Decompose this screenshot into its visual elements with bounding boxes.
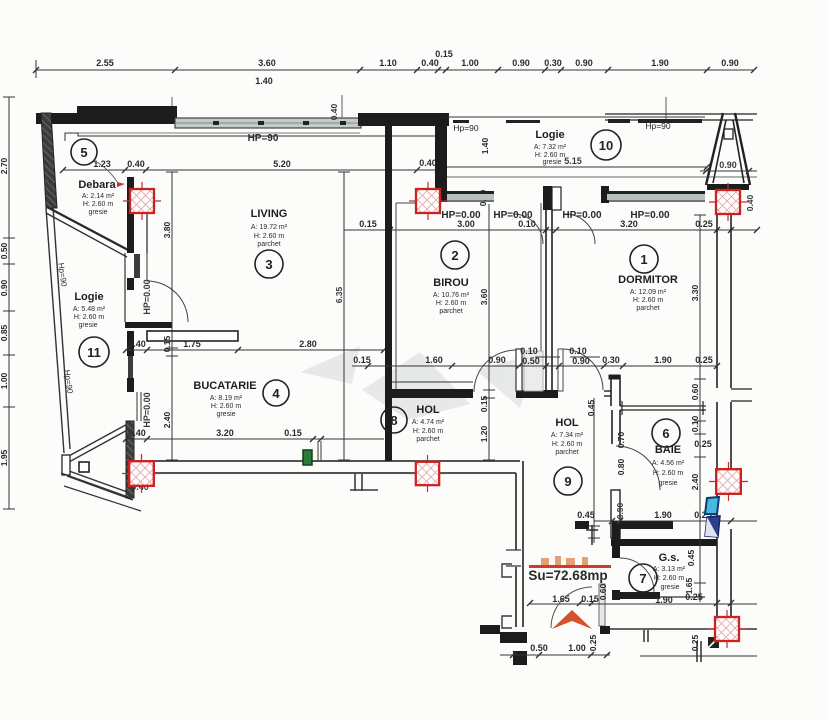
svg-text:0.90: 0.90 [0,279,9,296]
svg-text:parchet: parchet [416,436,439,443]
svg-text:1.00: 1.00 [568,643,586,653]
svg-text:gresie: gresie [660,584,679,591]
svg-text:HP=0.00: HP=0.00 [441,210,481,221]
svg-text:2.40: 2.40 [162,411,172,428]
svg-text:0.40: 0.40 [128,428,146,438]
svg-text:H: 2.60 m: H: 2.60 m [436,300,467,307]
svg-text:3.60: 3.60 [479,288,489,305]
svg-text:A: 4.56 m²: A: 4.56 m² [652,460,685,467]
svg-text:0.90: 0.90 [512,58,530,68]
svg-text:H: 2.60 m: H: 2.60 m [413,428,444,435]
svg-text:0.90: 0.90 [575,58,593,68]
svg-text:HP=0.00: HP=0.00 [493,210,533,221]
svg-text:H: 2.60 m: H: 2.60 m [83,201,114,208]
svg-text:1.60: 1.60 [425,355,443,365]
svg-text:H: 2.60 m: H: 2.60 m [654,575,685,582]
svg-text:0.70: 0.70 [616,431,626,448]
svg-text:1: 1 [640,252,647,267]
svg-text:0.40: 0.40 [127,159,145,169]
svg-text:Logie: Logie [535,129,564,141]
svg-text:H: 2.60 m: H: 2.60 m [552,441,583,448]
svg-text:6.35: 6.35 [334,286,344,303]
svg-text:HP=0.00: HP=0.00 [562,210,602,221]
svg-text:gresie: gresie [88,209,107,216]
svg-text:0.60: 0.60 [598,583,608,600]
svg-text:1.23: 1.23 [93,159,111,169]
svg-text:5.15: 5.15 [564,156,582,166]
svg-text:1.40: 1.40 [255,76,273,86]
svg-text:Logie: Logie [74,291,103,303]
svg-text:0.40: 0.40 [419,158,437,168]
svg-text:0.40: 0.40 [745,194,755,211]
svg-text:1.00: 1.00 [461,58,479,68]
svg-text:H: 2.60 m: H: 2.60 m [535,152,566,159]
svg-text:0.90: 0.90 [572,356,590,366]
svg-text:A: 2.14 m²: A: 2.14 m² [82,193,115,200]
svg-text:5: 5 [80,145,87,160]
svg-text:0.80: 0.80 [616,458,626,475]
svg-text:5.20: 5.20 [273,159,291,169]
svg-text:2: 2 [451,248,458,263]
svg-text:HP=90: HP=90 [248,133,279,144]
svg-text:0.25: 0.25 [695,219,713,229]
svg-text:0.15: 0.15 [581,594,599,604]
svg-text:BIROU: BIROU [433,277,469,289]
svg-text:H: 2.60 m: H: 2.60 m [653,470,684,477]
svg-text:11: 11 [87,345,101,360]
svg-text:0.15: 0.15 [284,428,302,438]
svg-text:HOL: HOL [555,417,579,429]
svg-text:0.10: 0.10 [569,346,587,356]
svg-text:0.45: 0.45 [686,549,696,566]
svg-text:6: 6 [662,426,669,441]
svg-text:0.25: 0.25 [685,592,703,602]
svg-text:2.80: 2.80 [299,339,317,349]
svg-text:parchet: parchet [439,308,462,315]
svg-text:0.90: 0.90 [719,160,737,170]
svg-text:Debara: Debara [78,179,116,191]
svg-text:0.90: 0.90 [615,502,625,519]
svg-text:parchet: parchet [555,449,578,456]
svg-text:BUCATARIE: BUCATARIE [193,380,256,392]
svg-text:H: 2.60 m: H: 2.60 m [254,233,285,240]
svg-text:1.10: 1.10 [379,58,397,68]
svg-text:LIVING: LIVING [251,208,288,220]
svg-text:parchet: parchet [636,305,659,312]
svg-text:10: 10 [599,138,613,153]
svg-text:parchet: parchet [257,241,280,248]
svg-text:gresie: gresie [542,159,561,166]
svg-text:7: 7 [639,571,646,586]
svg-text:1.90: 1.90 [654,510,672,520]
svg-text:1.90: 1.90 [651,58,669,68]
svg-text:0.50: 0.50 [522,356,540,366]
svg-text:0.85: 0.85 [0,324,9,341]
svg-text:A: 7.34 m²: A: 7.34 m² [551,432,584,439]
svg-text:A: 7.32 m²: A: 7.32 m² [534,144,567,151]
svg-text:HP=0.00: HP=0.00 [630,210,670,221]
svg-text:1.75: 1.75 [183,339,201,349]
svg-text:A: 8.19 m²: A: 8.19 m² [210,395,243,402]
svg-text:0.45: 0.45 [586,399,596,416]
svg-text:Su=72.68mp: Su=72.68mp [528,568,607,583]
svg-text:A: 3.13 m²: A: 3.13 m² [653,566,686,573]
svg-text:1.90: 1.90 [654,355,672,365]
svg-text:DORMITOR: DORMITOR [618,274,678,286]
svg-text:1.20: 1.20 [479,425,489,442]
svg-text:1.00: 1.00 [0,372,9,389]
svg-text:2.70: 2.70 [0,157,9,174]
svg-text:0.25: 0.25 [690,634,700,651]
svg-text:0.25: 0.25 [588,634,598,651]
svg-text:0.10: 0.10 [690,415,700,432]
svg-text:3.80: 3.80 [162,221,172,238]
svg-text:0.40: 0.40 [128,339,146,349]
svg-text:HP=0.00: HP=0.00 [142,392,152,427]
svg-text:1.95: 1.95 [0,449,9,466]
svg-text:0.10: 0.10 [520,346,538,356]
svg-text:9: 9 [564,474,571,489]
svg-text:0.15: 0.15 [435,49,453,59]
svg-text:H: 2.60 m: H: 2.60 m [74,314,105,321]
svg-text:gresie: gresie [658,480,677,487]
svg-text:0.15: 0.15 [359,219,377,229]
svg-text:Hp=90: Hp=90 [645,121,671,131]
svg-text:A: 12.09 m²: A: 12.09 m² [630,289,667,296]
svg-text:0.40: 0.40 [421,58,439,68]
svg-text:gresie: gresie [78,322,97,329]
svg-text:0.25: 0.25 [694,439,712,449]
svg-text:0.25: 0.25 [695,355,713,365]
svg-text:A: 5.48 m²: A: 5.48 m² [73,306,106,313]
svg-text:0.15: 0.15 [353,355,371,365]
svg-text:3.20: 3.20 [216,428,234,438]
svg-text:G.s.: G.s. [659,552,680,564]
svg-text:A: 19.72 m²: A: 19.72 m² [251,224,288,231]
svg-text:2.55: 2.55 [96,58,114,68]
svg-text:0.50: 0.50 [530,643,548,653]
svg-text:Hp=90: Hp=90 [453,123,479,133]
svg-text:8: 8 [390,413,397,428]
svg-text:gresie: gresie [216,411,235,418]
svg-text:3: 3 [265,257,272,272]
svg-text:HOL: HOL [416,404,440,416]
svg-text:H: 2.60 m: H: 2.60 m [211,403,242,410]
svg-text:4: 4 [272,386,280,401]
svg-text:0.15: 0.15 [479,395,489,412]
svg-text:HP=0.00: HP=0.00 [142,279,152,314]
svg-text:A: 10.76 m²: A: 10.76 m² [433,292,470,299]
svg-text:A: 4.74 m²: A: 4.74 m² [412,419,445,426]
svg-text:2.40: 2.40 [690,473,700,490]
svg-text:0.40: 0.40 [329,103,339,120]
svg-text:3.30: 3.30 [690,284,700,301]
svg-text:0.90: 0.90 [721,58,739,68]
svg-text:0.45: 0.45 [577,510,595,520]
svg-text:1.90: 1.90 [655,595,673,605]
svg-text:0.50: 0.50 [0,242,9,259]
svg-text:0.15: 0.15 [162,335,172,352]
svg-text:0.90: 0.90 [488,355,506,365]
svg-text:H: 2.60 m: H: 2.60 m [633,297,664,304]
svg-text:0.30: 0.30 [602,355,620,365]
svg-text:1.40: 1.40 [480,137,490,154]
svg-text:0.60: 0.60 [690,383,700,400]
svg-text:0.30: 0.30 [544,58,562,68]
svg-text:3.60: 3.60 [258,58,276,68]
